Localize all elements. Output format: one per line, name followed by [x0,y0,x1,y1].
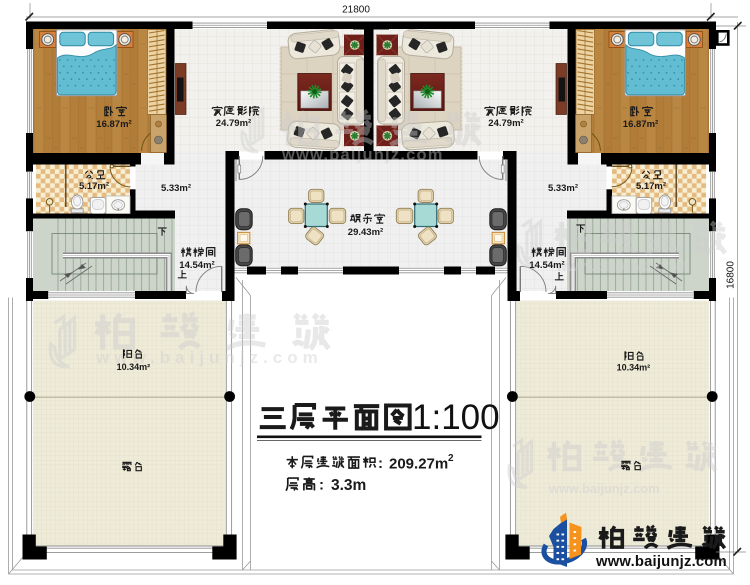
svg-text:16800: 16800 [726,261,737,289]
svg-text:24.79m²: 24.79m² [488,118,523,129]
svg-text:14.54m²: 14.54m² [529,260,564,271]
svg-text:14.54m²: 14.54m² [179,260,214,271]
svg-text:10.34m²: 10.34m² [617,363,651,373]
svg-text:3.3m: 3.3m [331,477,366,494]
svg-text:10.34m²: 10.34m² [117,362,151,372]
svg-text::: : [319,477,324,494]
svg-text:2: 2 [448,453,454,464]
svg-text:www.baijunjz.com: www.baijunjz.com [595,554,727,570]
svg-text:5.33m²: 5.33m² [161,183,191,194]
svg-text:www.baijunjz.com: www.baijunjz.com [548,481,659,496]
svg-text:5.33m²: 5.33m² [548,183,578,194]
svg-text:29.43m²: 29.43m² [348,227,383,238]
svg-text:21800: 21800 [342,5,370,16]
svg-text:24.79m²: 24.79m² [216,118,251,129]
svg-text:16.87m²: 16.87m² [623,119,658,130]
svg-text:1:100: 1:100 [412,398,500,437]
svg-text:www.baijunjz.com: www.baijunjz.com [281,146,444,164]
svg-text::: : [378,455,383,472]
svg-text:5.17m²: 5.17m² [79,181,109,192]
svg-text:209.27m: 209.27m [389,456,448,473]
svg-text:5.17m²: 5.17m² [636,181,666,192]
svg-text:16.87m²: 16.87m² [96,119,131,130]
svg-text:www.baijunjz.com: www.baijunjz.com [555,259,688,275]
